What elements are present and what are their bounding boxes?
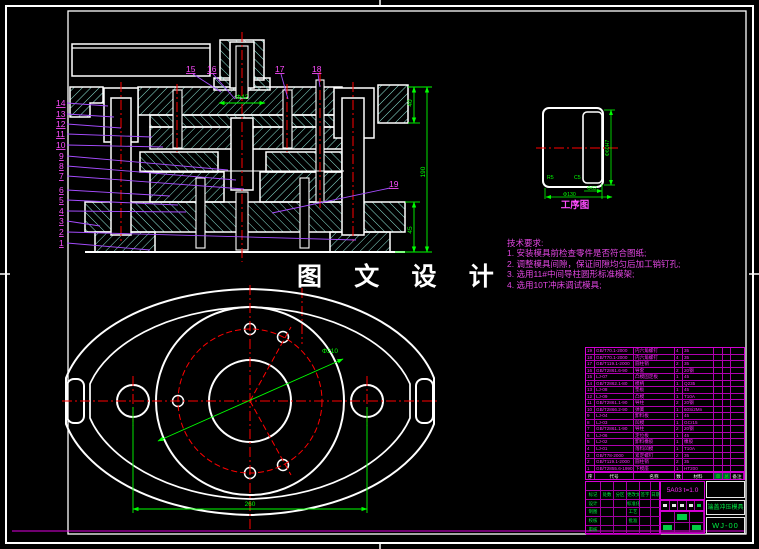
mark-block <box>690 523 704 534</box>
svg-text:4: 4 <box>59 206 64 216</box>
notes-line: 2. 调整模具间隙，保证间隙均匀后加工销钉孔; <box>507 259 680 269</box>
mark-block <box>661 512 675 523</box>
sign-cell: 审核 <box>586 526 601 535</box>
sign-cell: 标记 <box>586 491 601 500</box>
sign-cell: 分区 <box>614 491 627 500</box>
svg-text:11: 11 <box>56 129 65 139</box>
mark-block <box>661 523 675 534</box>
cad-drawing-sheet: 1413 1211 109 87 65 43 21 1516 1718 19 4… <box>0 0 759 549</box>
sheet-count-cells <box>660 511 705 534</box>
svg-text:12: 12 <box>56 119 66 129</box>
bom-header-cell: 材料 <box>683 473 714 479</box>
mark-block <box>678 501 687 510</box>
technical-notes: 技术要求: 1. 安装模具前检查零件是否符合图纸; 2. 调整模具间隙，保证间隙… <box>507 238 680 290</box>
svg-text:16: 16 <box>207 64 217 74</box>
process-view: Φ60H7 Φ62 Φ130 R5 C5 工序图 <box>536 108 620 211</box>
sign-cell <box>601 517 614 526</box>
svg-text:19: 19 <box>389 179 399 189</box>
watermark-text: 图 文 设 计 <box>297 257 507 293</box>
bom-cell <box>723 466 731 472</box>
sign-cell: 工艺 <box>627 508 640 517</box>
svg-text:14: 14 <box>56 98 66 108</box>
sign-cell: 设计 <box>586 500 601 509</box>
svg-text:18: 18 <box>312 64 322 74</box>
mark-block <box>675 512 689 523</box>
svg-text:40: 40 <box>407 99 414 107</box>
sign-cell: 批准 <box>627 517 640 526</box>
svg-text:5: 5 <box>59 195 64 205</box>
bom-cell: HT200 <box>683 466 714 472</box>
company-box <box>706 481 745 498</box>
svg-text:2: 2 <box>59 227 64 237</box>
svg-text:6: 6 <box>59 185 64 195</box>
sign-cell <box>640 482 651 491</box>
sign-cell <box>627 482 640 491</box>
bom-cell: GB/T2855.6-1990 <box>595 466 634 472</box>
bom-header-row: 序号代号名称数量材料单件总计备注 <box>585 472 745 480</box>
sign-cell <box>614 482 627 491</box>
sign-cell <box>601 482 614 491</box>
svg-text:R5: R5 <box>547 175 554 181</box>
sign-cell: 处数 <box>601 491 614 500</box>
sign-cell <box>640 517 651 526</box>
sign-cell <box>614 517 627 526</box>
svg-text:8: 8 <box>59 161 64 171</box>
svg-text:Φ60H7: Φ60H7 <box>605 140 611 157</box>
bom-header-cell: 名称 <box>634 473 675 479</box>
sign-cell: 标准化 <box>627 500 640 509</box>
svg-text:1: 1 <box>59 238 64 248</box>
svg-text:3: 3 <box>59 216 64 226</box>
notes-line: 4. 选用10T冲床调试模具; <box>507 280 680 290</box>
blank-material-cell: 5A03 t=1.0 <box>660 481 705 500</box>
mark-block <box>695 501 704 510</box>
drawing-title: 端盖冲压模具 <box>706 500 745 515</box>
process-view-label: 工序图 <box>561 199 590 211</box>
mark-block <box>670 501 679 510</box>
svg-text:13: 13 <box>56 109 66 119</box>
sign-cell <box>614 508 627 517</box>
svg-text:9: 9 <box>59 151 64 161</box>
sign-cell: 校核 <box>586 517 601 526</box>
mark-block <box>687 501 696 510</box>
bom-header-cell: 序号 <box>586 473 595 479</box>
bom-row: 1GB/T2855.6-1990下模座1HT200 <box>586 465 744 472</box>
bom-header-cell: 代号 <box>595 473 634 479</box>
notes-line: 1. 安装模具前检查零件是否符合图纸; <box>507 248 680 258</box>
mark-block <box>690 512 704 523</box>
sign-cell <box>601 508 614 517</box>
svg-text:10: 10 <box>56 140 66 150</box>
sign-cell <box>640 500 651 509</box>
sign-cell <box>614 500 627 509</box>
sign-cell: 更改文件 <box>627 491 640 500</box>
bom-header-cell: 数量 <box>675 473 683 479</box>
bom-header-cell: 总计 <box>723 473 731 479</box>
bom-cell <box>731 466 744 472</box>
sign-cell <box>601 500 614 509</box>
bom-table: 19GB/T70.1-2000内六角螺钉43518GB/T70.1-2000内六… <box>585 347 745 472</box>
bom-cell: 1 <box>675 466 683 472</box>
notes-line: 3. 选用11#中间导柱圆形标准模架; <box>507 269 680 279</box>
sign-cell: 制图 <box>586 508 601 517</box>
scale-cells <box>660 500 705 511</box>
svg-text:260: 260 <box>245 501 256 508</box>
sign-cell <box>627 526 640 535</box>
mark-block <box>675 523 689 534</box>
sign-cell <box>586 482 601 491</box>
bom-cell <box>714 466 723 472</box>
notes-title: 技术要求: <box>507 238 680 248</box>
svg-text:7: 7 <box>59 171 64 181</box>
mark-block <box>661 501 670 510</box>
svg-text:45: 45 <box>407 226 414 234</box>
svg-text:Φ210: Φ210 <box>322 348 338 355</box>
svg-text:Φ130: Φ130 <box>563 192 576 198</box>
svg-text:15: 15 <box>186 64 196 74</box>
sign-cell <box>614 526 627 535</box>
signature-grid: 标记处数分区更改文件签字日期设计标准化制图工艺校核批准审核 <box>585 481 660 534</box>
svg-text:C5: C5 <box>574 175 581 181</box>
sign-cell <box>601 526 614 535</box>
svg-text:Φ42: Φ42 <box>236 94 249 101</box>
drawing-number: WJ-00 <box>706 517 745 534</box>
bom-header-cell: 单件 <box>714 473 723 479</box>
sign-cell <box>640 526 651 535</box>
sign-cell <box>640 508 651 517</box>
bom-cell: 1 <box>586 466 595 472</box>
svg-text:190: 190 <box>420 166 427 177</box>
svg-text:17: 17 <box>275 64 285 74</box>
bom-header-cell: 备注 <box>731 473 744 479</box>
bom-cell: 下模座 <box>634 466 675 472</box>
sign-cell: 签字 <box>640 491 651 500</box>
svg-text:Φ62: Φ62 <box>587 186 597 192</box>
